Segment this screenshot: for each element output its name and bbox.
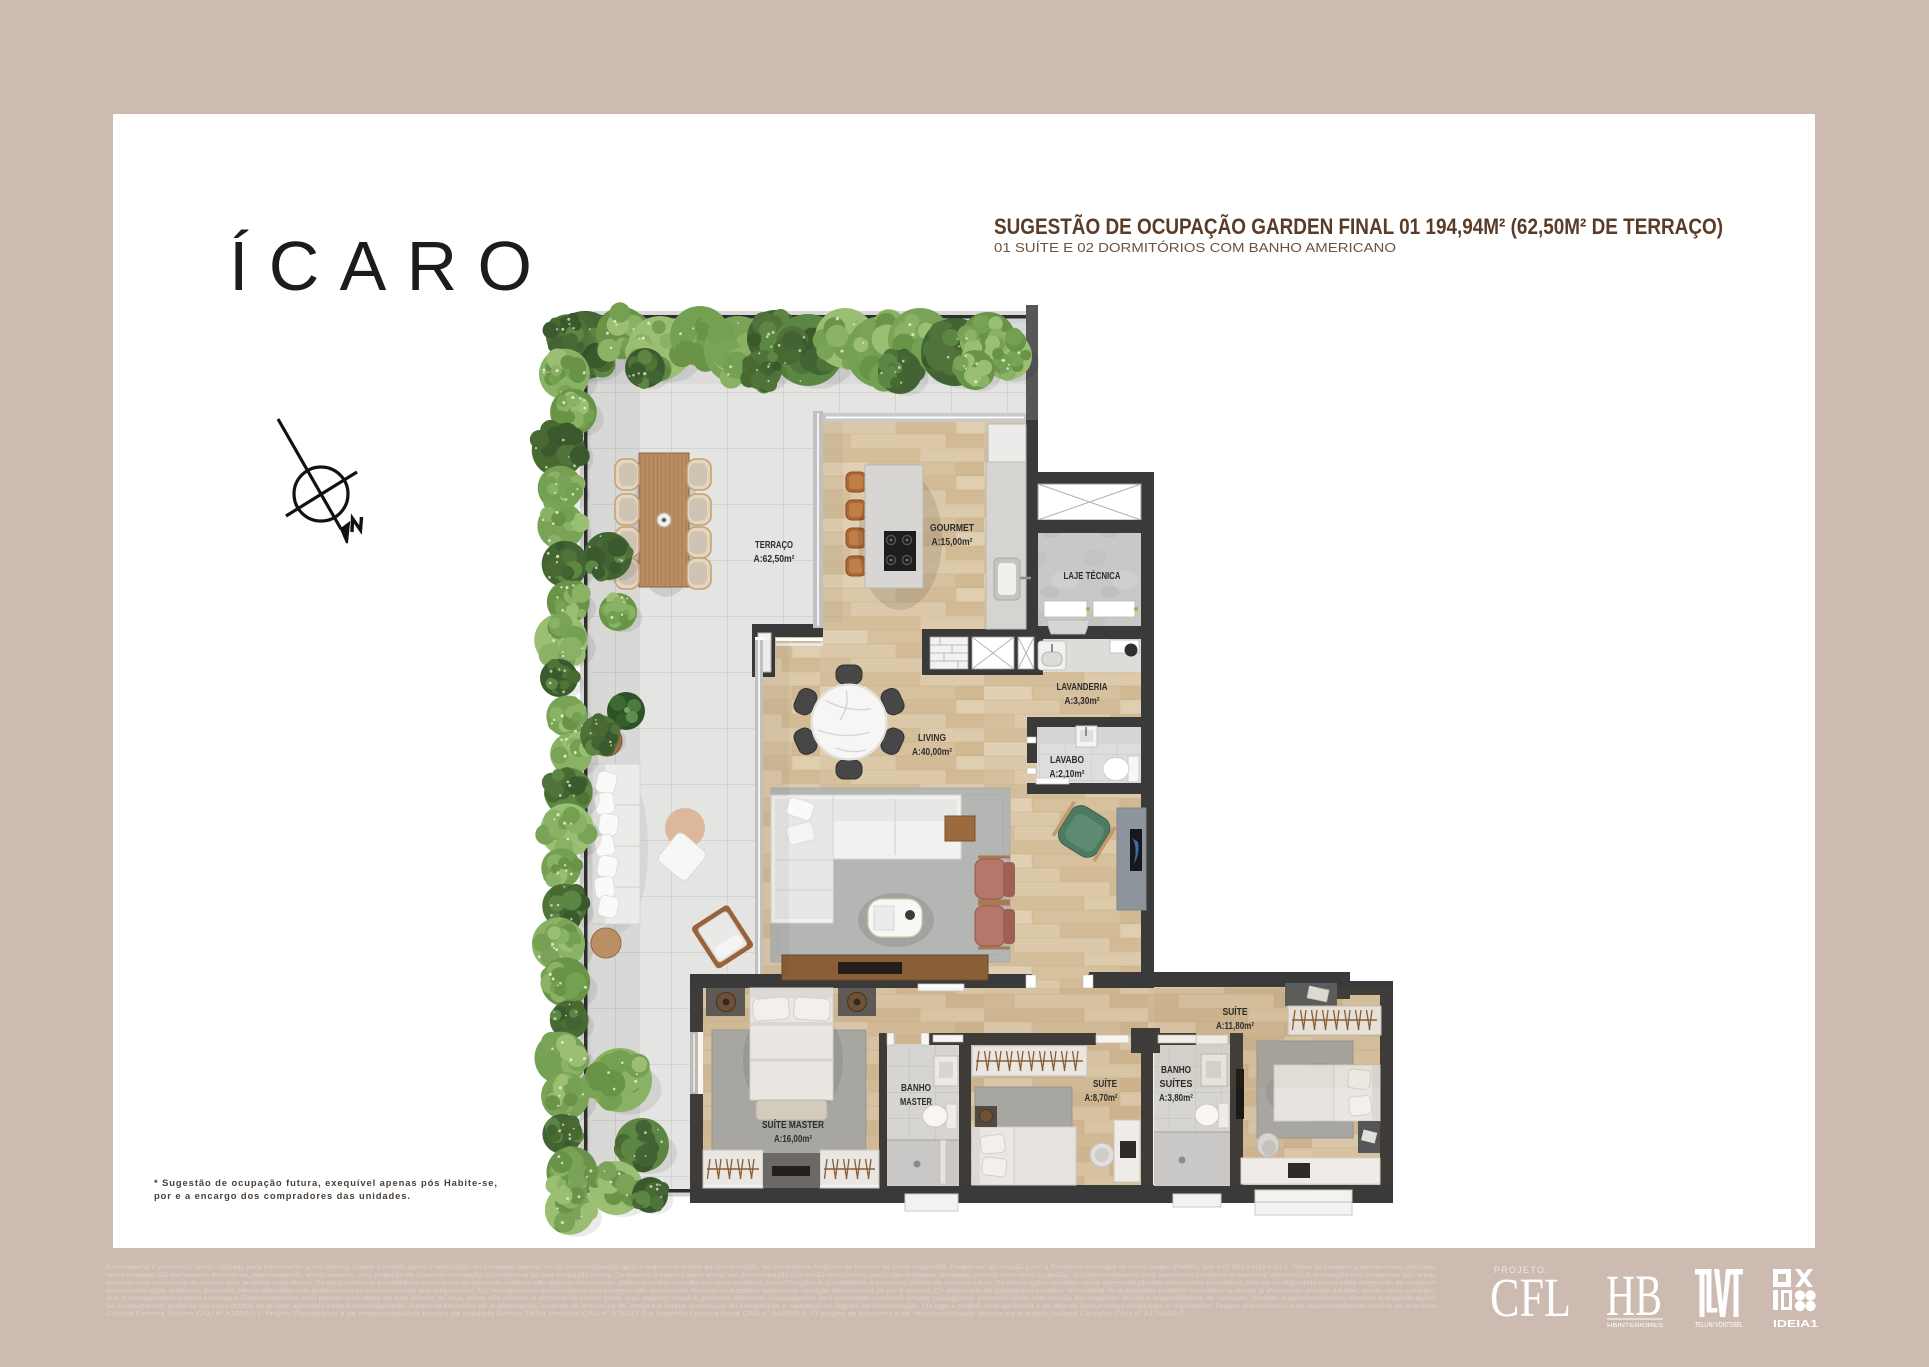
svg-text:SUÍTE MASTER: SUÍTE MASTER <box>762 1118 824 1131</box>
svg-text:SUÍTE: SUÍTE <box>1093 1077 1117 1090</box>
svg-text:LIVING: LIVING <box>918 732 946 744</box>
svg-text:A:2,10m²: A:2,10m² <box>1050 769 1086 780</box>
svg-text:Este material é provisório, se: Este material é provisório, sendo utiliz… <box>106 1264 1437 1271</box>
svg-text:SUGESTÃO DE OCUPAÇÃO GARDEN FI: SUGESTÃO DE OCUPAÇÃO GARDEN FINAL 01 194… <box>994 214 1723 239</box>
svg-text:SUÍTES: SUÍTES <box>1160 1077 1193 1090</box>
svg-text:HB: HB <box>1606 1263 1662 1328</box>
svg-text:SUÍTE: SUÍTE <box>1223 1005 1248 1018</box>
svg-text:TELLINI VONTOBEL: TELLINI VONTOBEL <box>1695 1322 1743 1329</box>
svg-text:A:15,00m²: A:15,00m² <box>932 537 974 548</box>
svg-text:LAJE TÉCNICA: LAJE TÉCNICA <box>1064 569 1121 582</box>
svg-text:instrumento legal, podendo, in: instrumento legal, podendo, inclusive, s… <box>106 1287 1436 1294</box>
svg-text:que o incorporadora poderá ent: que o incorporadora poderá entregar o Em… <box>106 1295 1437 1302</box>
svg-text:por e a encargo dos compradore: por e a encargo dos compradores das unid… <box>154 1190 410 1201</box>
svg-text:A:3,30m²: A:3,30m² <box>1065 696 1101 707</box>
svg-text:ÍCARO: ÍCARO <box>229 227 532 305</box>
svg-text:BANHO: BANHO <box>1161 1064 1191 1076</box>
svg-text:01 SUÍTE E 02 DORMITÓRIOS COM: 01 SUÍTE E 02 DORMITÓRIOS COM BANHO AMER… <box>994 240 1396 255</box>
svg-text:GOURMET: GOURMET <box>930 522 974 534</box>
svg-text:MASTER: MASTER <box>900 1096 932 1108</box>
svg-text:de acabamentos, poderão ser co: de acabamentos, poderão ser consultados … <box>106 1303 1436 1310</box>
svg-text:LAVABO: LAVABO <box>1050 754 1084 766</box>
svg-text:A:8,70m²: A:8,70m² <box>1085 1093 1119 1104</box>
svg-text:LAVANDERIA: LAVANDERIA <box>1057 681 1108 693</box>
svg-text:Cristina Ferreira Martins CAU: Cristina Ferreira Martins CAU nº A38561-… <box>106 1311 1186 1318</box>
svg-text:TERRAÇO: TERRAÇO <box>755 539 793 551</box>
svg-text:HBINTERIORES: HBINTERIORES <box>1607 1323 1663 1329</box>
svg-text:* Sugestão de ocupação futura,: * Sugestão de ocupação futura, exequível… <box>154 1177 497 1188</box>
svg-text:A:16,00m²: A:16,00m² <box>774 1134 813 1145</box>
svg-text:neste material são meramente i: neste material são meramente ilustrativa… <box>106 1272 1437 1279</box>
svg-text:comuns será executada de acord: comuns será executada de acordo com proj… <box>106 1280 1437 1287</box>
svg-text:A:40,00m²: A:40,00m² <box>912 747 953 758</box>
svg-text:A:3,80m²: A:3,80m² <box>1159 1093 1194 1104</box>
svg-text:IDEIA1: IDEIA1 <box>1773 1318 1818 1330</box>
svg-text:CFL: CFL <box>1490 1267 1571 1328</box>
svg-text:BANHO: BANHO <box>901 1082 931 1094</box>
svg-text:A:62,50m²: A:62,50m² <box>754 554 796 565</box>
svg-text:A:11,80m²: A:11,80m² <box>1216 1021 1255 1032</box>
